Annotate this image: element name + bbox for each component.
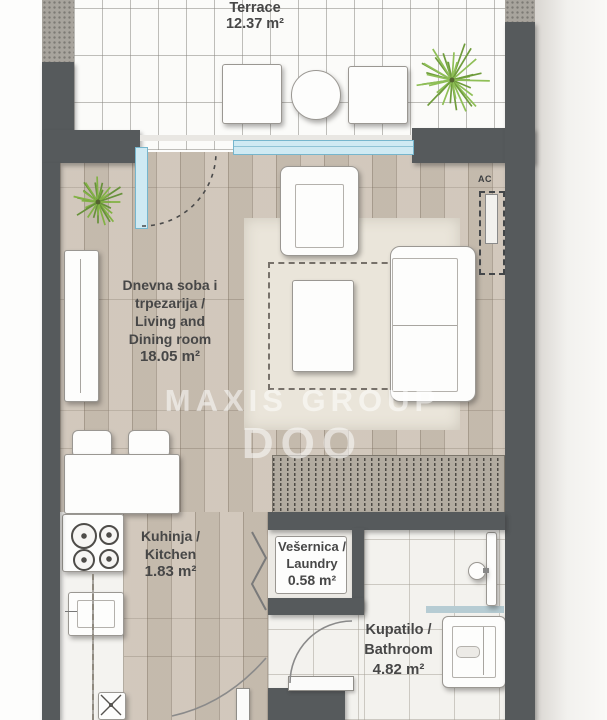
- sofa-cushion-divider: [393, 325, 457, 326]
- armchair-seat: [295, 184, 344, 248]
- room-name: Living and: [90, 312, 250, 330]
- shower-arm: [483, 568, 489, 573]
- room-area: 4.82 m²: [336, 660, 461, 680]
- coffee-table: [292, 280, 354, 372]
- terrace-chair: [348, 66, 408, 124]
- ac-label: AC: [478, 174, 492, 184]
- faucet-icon: [65, 611, 77, 612]
- wall-right: [505, 22, 535, 720]
- sofa: [390, 246, 476, 402]
- dining-table: [64, 454, 180, 514]
- room-area: 12.37 m²: [170, 16, 340, 32]
- armchair: [280, 166, 359, 256]
- kitchen-label: Kuhinja / Kitchen 1.83 m²: [118, 527, 223, 581]
- room-name: Kupatilo /: [336, 620, 461, 640]
- room-name: Vešernica /: [256, 538, 368, 555]
- room-name: Dining room: [90, 330, 250, 348]
- kitchen-sink: [68, 592, 124, 636]
- washer-door-edge: [483, 627, 484, 675]
- shower-glass-partition: [426, 606, 504, 613]
- room-name: trpezarija /: [90, 294, 250, 312]
- room-name: Dnevna soba i: [90, 276, 250, 294]
- wall: [268, 512, 505, 530]
- radiator-line: [80, 259, 81, 393]
- stove: [62, 514, 124, 572]
- burner: [99, 549, 119, 569]
- room-name: Terrace: [170, 0, 340, 16]
- wall: [42, 130, 140, 163]
- burner: [73, 549, 95, 571]
- terrace-window: [233, 140, 414, 155]
- wall-left: [42, 163, 60, 720]
- window-mid-line: [234, 146, 413, 147]
- room-area: 0.58 m²: [256, 572, 368, 589]
- burner: [99, 525, 119, 545]
- wall-column-textured: [505, 0, 535, 24]
- floor-drain: [98, 692, 126, 720]
- room-name: Kuhinja /: [118, 527, 223, 545]
- living-room-label: Dnevna soba i trpezarija / Living and Di…: [90, 276, 250, 366]
- balcony-door-leaf: [135, 147, 148, 229]
- terrace-round-table: [291, 70, 341, 120]
- wall: [268, 598, 364, 615]
- page-margin: [535, 0, 607, 720]
- burner: [71, 523, 97, 549]
- wall: [42, 62, 74, 132]
- room-area: 18.05 m²: [90, 348, 250, 366]
- room-name: Laundry: [256, 555, 368, 572]
- laundry-label: Vešernica / Laundry 0.58 m²: [256, 538, 368, 589]
- wardrobe-hatch: [272, 455, 505, 514]
- entry-door-leaf: [236, 688, 250, 720]
- terrace-chair: [222, 64, 282, 124]
- room-name: Kitchen: [118, 545, 223, 563]
- terrace-label: Terrace 12.37 m²: [170, 0, 340, 32]
- floor-plan: AC Terrace 12.37 m² Dnevna soba i trpeza…: [0, 0, 607, 720]
- room-area: 1.83 m²: [118, 563, 223, 581]
- wall-column-textured: [42, 0, 74, 64]
- wall: [268, 688, 345, 720]
- room-name: Bathroom: [336, 640, 461, 660]
- bathroom-label: Kupatilo / Bathroom 4.82 m²: [336, 620, 461, 680]
- ac-unit: [485, 194, 498, 244]
- counter-edge-dashed-line: [92, 574, 94, 720]
- sink-basin: [77, 600, 115, 628]
